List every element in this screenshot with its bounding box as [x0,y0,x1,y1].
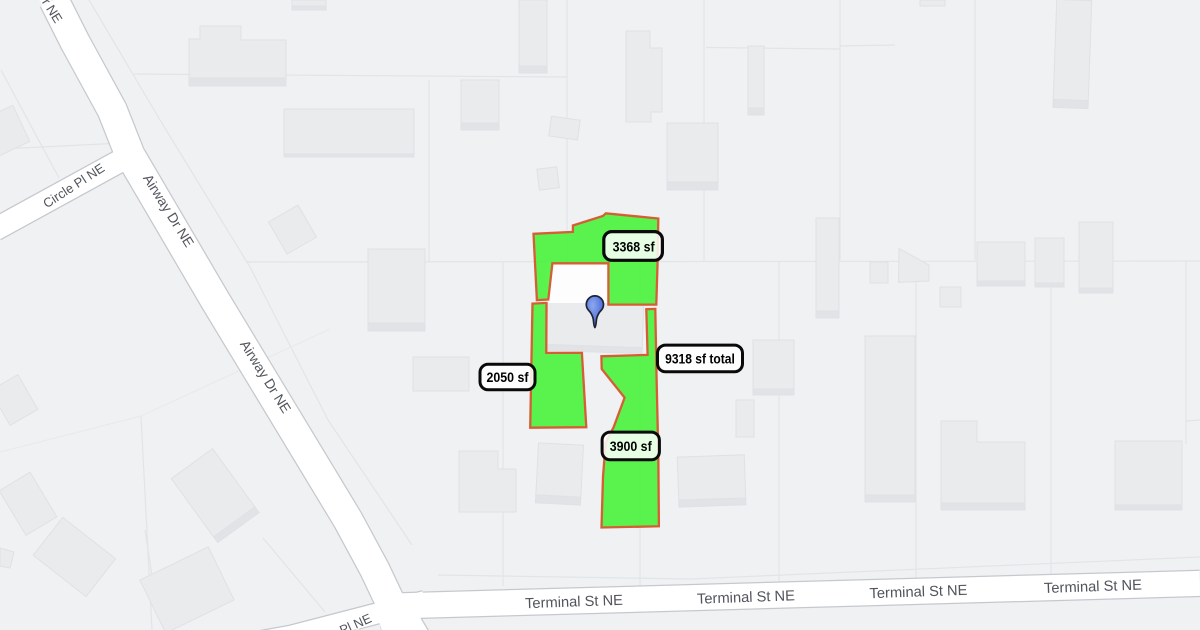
svg-text:Terminal St NE: Terminal St NE [697,588,796,607]
svg-text:3900 sf: 3900 sf [610,438,652,454]
svg-text:3368 sf: 3368 sf [613,238,655,254]
svg-text:Terminal St NE: Terminal St NE [525,593,624,612]
svg-text:9318 sf total: 9318 sf total [665,350,735,366]
svg-text:Terminal St NE: Terminal St NE [1044,578,1143,597]
svg-text:2050 sf: 2050 sf [487,369,529,385]
svg-text:Terminal St NE: Terminal St NE [869,583,968,602]
